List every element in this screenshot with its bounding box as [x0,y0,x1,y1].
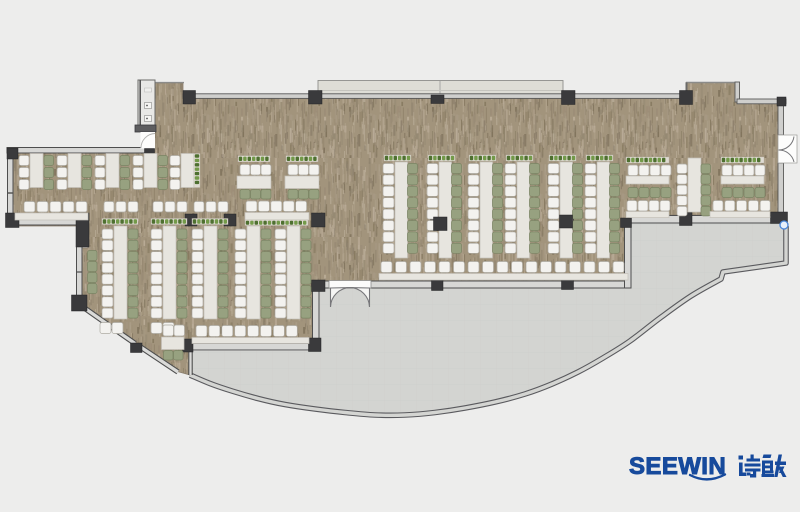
svg-text:SEEWIN: SEEWIN [629,453,726,480]
